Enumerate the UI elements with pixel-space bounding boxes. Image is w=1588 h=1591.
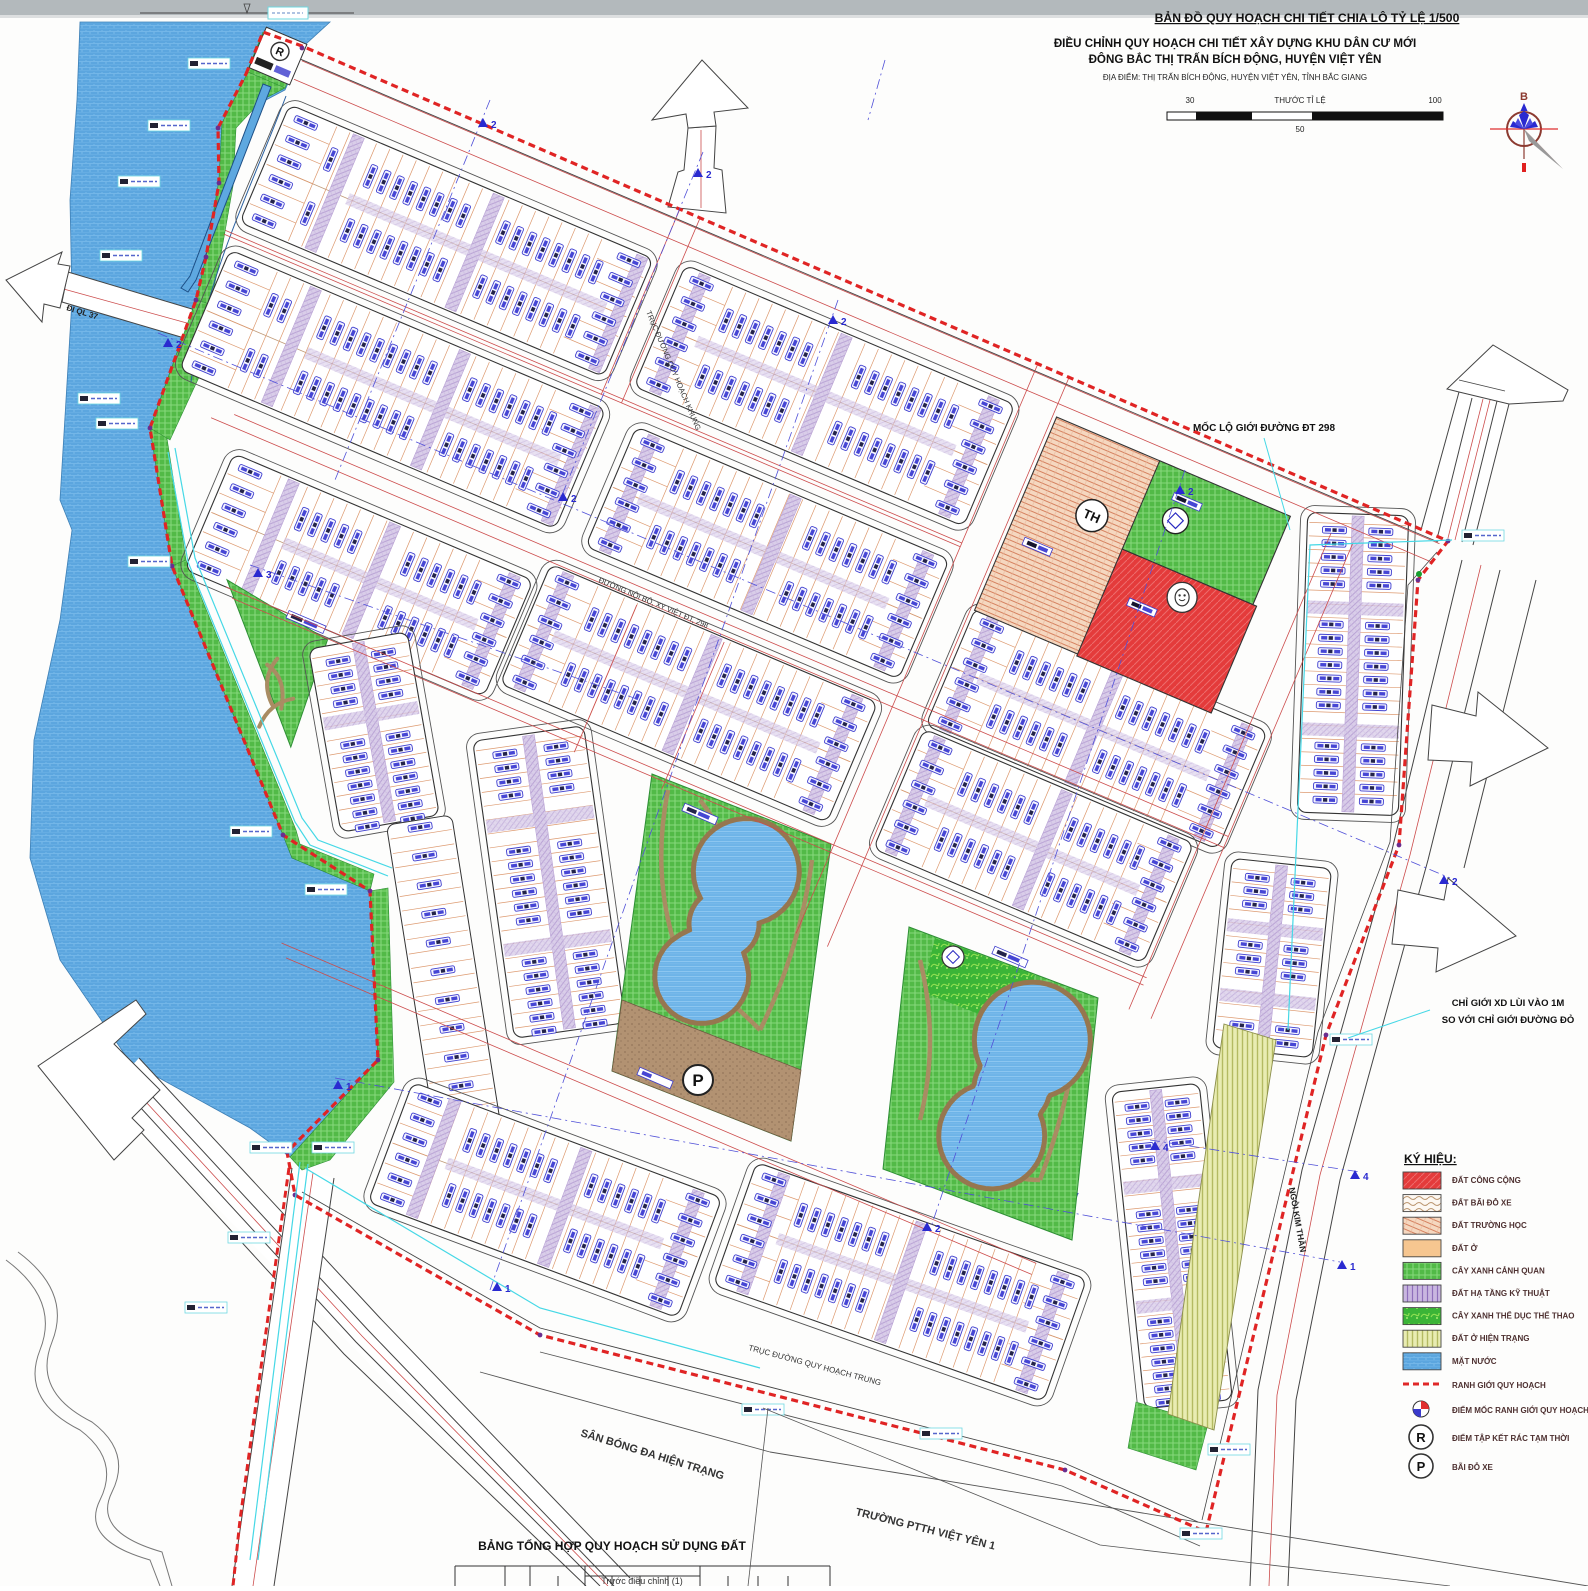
svg-text:2: 2 — [571, 494, 577, 505]
svg-text:BẢNG TỔNG HỢP QUY HOẠCH SỬ DỤN: BẢNG TỔNG HỢP QUY HOẠCH SỬ DỤNG ĐẤT — [478, 1538, 746, 1553]
svg-text:3: 3 — [266, 570, 272, 581]
svg-text:CHỈ GIỚI XD LÙI VÀO 1M: CHỈ GIỚI XD LÙI VÀO 1M — [1452, 997, 1565, 1009]
svg-text:RANH GIỚI QUY HOẠCH: RANH GIỚI QUY HOẠCH — [1452, 1381, 1546, 1390]
svg-text:ĐIỂM TẬP KẾT RÁC TẠM THỜI: ĐIỂM TẬP KẾT RÁC TẠM THỜI — [1452, 1433, 1569, 1443]
svg-text:BÃI ĐỖ XE: BÃI ĐỖ XE — [1452, 1463, 1494, 1472]
svg-text:ĐẤT Ở: ĐẤT Ở — [1452, 1243, 1478, 1253]
svg-text:CÂY XANH THỂ DỤC THỂ THAO: CÂY XANH THỂ DỤC THỂ THAO — [1452, 1312, 1575, 1321]
svg-text:4: 4 — [1363, 1172, 1369, 1183]
svg-text:MẶT NƯỚC: MẶT NƯỚC — [1452, 1357, 1497, 1366]
svg-text:R: R — [1416, 1430, 1426, 1445]
svg-text:P: P — [692, 1071, 703, 1090]
svg-text:ĐIỂM MỐC RANH GIỚI QUY HOẠCH: ĐIỂM MỐC RANH GIỚI QUY HOẠCH — [1452, 1405, 1588, 1415]
svg-text:ĐẤT TRƯỜNG HỌC: ĐẤT TRƯỜNG HỌC — [1452, 1220, 1527, 1230]
svg-text:2: 2 — [935, 1224, 941, 1235]
svg-text:2: 2 — [176, 340, 182, 351]
svg-text:B: B — [1520, 91, 1528, 103]
svg-text:Trước điều chỉnh (1): Trước điều chỉnh (1) — [601, 1576, 683, 1586]
svg-text:50: 50 — [1296, 125, 1305, 134]
svg-text:ĐẤT BÃI ĐỖ XE: ĐẤT BÃI ĐỖ XE — [1452, 1198, 1512, 1208]
svg-text:ĐẤT Ở HIỆN TRẠNG: ĐẤT Ở HIỆN TRẠNG — [1452, 1333, 1530, 1343]
svg-text:30: 30 — [1186, 96, 1195, 105]
svg-text:2: 2 — [841, 317, 847, 328]
svg-text:2: 2 — [491, 120, 497, 131]
svg-text:ĐỊA ĐIỂM: THỊ TRẤN BÍCH ĐỘNG,: ĐỊA ĐIỂM: THỊ TRẤN BÍCH ĐỘNG, HUYỆN VIỆT… — [1103, 72, 1367, 82]
svg-text:MỐC LỘ GIỚI ĐƯỜNG ĐT 298: MỐC LỘ GIỚI ĐƯỜNG ĐT 298 — [1193, 420, 1335, 434]
svg-text:2: 2 — [706, 170, 712, 181]
svg-text:ĐẤT HẠ TẦNG KỸ THUẬT: ĐẤT HẠ TẦNG KỸ THUẬT — [1452, 1288, 1550, 1298]
svg-text:1: 1 — [505, 1284, 511, 1295]
svg-text:1: 1 — [346, 1082, 352, 1093]
svg-text:P: P — [1417, 1459, 1426, 1474]
svg-text:CÂY XANH CẢNH QUAN: CÂY XANH CẢNH QUAN — [1452, 1266, 1545, 1275]
svg-text:ĐÔNG BẮC THỊ TRẤN BÍCH ĐỘNG, H: ĐÔNG BẮC THỊ TRẤN BÍCH ĐỘNG, HUYỆN VIỆT … — [1089, 53, 1382, 66]
svg-text:ĐẤT CÔNG CỘNG: ĐẤT CÔNG CỘNG — [1452, 1175, 1521, 1185]
svg-text:BẢN ĐỒ QUY HOẠCH CHI TIẾT CHIA: BẢN ĐỒ QUY HOẠCH CHI TIẾT CHIA LÔ TỶ LỆ … — [1155, 10, 1460, 25]
svg-text:4: 4 — [1163, 1143, 1169, 1154]
svg-text:ĐIỀU CHỈNH QUY HOẠCH CHI TIẾT: ĐIỀU CHỈNH QUY HOẠCH CHI TIẾT XÂY DỰNG K… — [1054, 37, 1416, 50]
svg-text:1: 1 — [1350, 1262, 1356, 1273]
svg-text:SO VỚI CHỈ GIỚI ĐƯỜNG ĐỎ: SO VỚI CHỈ GIỚI ĐƯỜNG ĐỎ — [1442, 1014, 1574, 1026]
svg-text:100: 100 — [1428, 96, 1442, 105]
svg-text:2: 2 — [1188, 487, 1194, 498]
svg-text:2: 2 — [1452, 877, 1458, 888]
svg-text:THƯỚC TỈ LỆ: THƯỚC TỈ LỆ — [1274, 96, 1325, 105]
svg-text:KÝ HIỆU:: KÝ HIỆU: — [1404, 1151, 1457, 1166]
